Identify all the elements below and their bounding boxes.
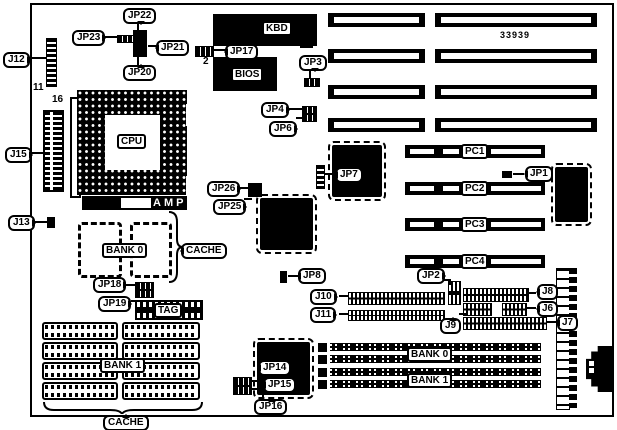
callout-cache-bottom: CACHE xyxy=(103,415,149,430)
callout-jp16: JP16 xyxy=(254,399,287,415)
jumper-jp23 xyxy=(117,35,134,43)
jumper-jp18 xyxy=(135,282,154,290)
isa-slot xyxy=(328,13,425,27)
cache-dip-chip xyxy=(122,382,200,400)
callout-j15: J15 xyxy=(5,147,32,163)
callout-jp22: JP22 xyxy=(123,8,156,24)
cache-bank1-label: BANK 1 xyxy=(100,358,145,373)
isa-slot xyxy=(435,85,597,99)
amp-label: AMP xyxy=(153,197,186,209)
callout-j12: J12 xyxy=(3,52,30,68)
callout-j10: J10 xyxy=(310,289,337,305)
callout-j8: J8 xyxy=(537,284,558,300)
isa-slot xyxy=(435,118,597,132)
amp-regulator-window xyxy=(121,198,151,208)
chipset-qfp xyxy=(260,198,313,250)
callout-jp25: JP25 xyxy=(213,199,246,215)
edge-connector-ladder xyxy=(556,268,570,410)
j15-pin16-label: 16 xyxy=(52,94,63,105)
jumper-j13 xyxy=(47,217,55,228)
j7-header xyxy=(463,317,547,330)
edge-connector-pins xyxy=(569,268,577,408)
bios-chip-label: BIOS xyxy=(231,67,263,82)
callout-j6: J6 xyxy=(537,301,558,317)
jumper-jp25-jp26-block xyxy=(248,183,262,197)
pci-slot-label: PC3 xyxy=(461,217,488,232)
isa-slot xyxy=(435,49,597,63)
j12-pin11-label: 11 xyxy=(33,82,44,93)
callout-jp6: JP6 xyxy=(269,121,297,137)
callout-jp17: JP17 xyxy=(225,44,258,60)
jumper-jp15 xyxy=(233,386,252,395)
callout-jp2: JP2 xyxy=(417,268,445,284)
jumper-jp1 xyxy=(502,171,512,178)
j11-header xyxy=(348,310,445,321)
jumper-jp14 xyxy=(233,377,252,386)
j9-header xyxy=(463,303,492,316)
callout-jp18: JP18 xyxy=(93,277,126,293)
isa-slot xyxy=(328,85,425,99)
callout-jp21: JP21 xyxy=(156,40,189,56)
jumper-jp8 xyxy=(280,271,287,283)
callout-j13: J13 xyxy=(8,215,35,231)
jumper-jp19 xyxy=(135,290,154,298)
pci-slot-label: PC2 xyxy=(461,181,488,196)
simm-bank0-label: BANK 0 xyxy=(407,347,452,362)
callout-jp26: JP26 xyxy=(207,181,240,197)
callout-j11: J11 xyxy=(310,307,336,323)
isa-slot xyxy=(328,49,425,63)
callout-jp19: JP19 xyxy=(98,296,131,312)
isa-slot xyxy=(328,118,425,132)
callout-jp23: JP23 xyxy=(72,30,105,46)
callout-jp7: JP7 xyxy=(335,167,363,183)
j15-connector xyxy=(43,110,64,192)
motherboard-diagram: 33939 PC1 PC2 PC3 PC4 KBD BIOS 2 11 16 C… xyxy=(0,0,617,430)
j6-header xyxy=(502,303,527,316)
callout-cache-top: CACHE xyxy=(181,243,227,259)
kbd-chip-label: KBD xyxy=(262,21,292,36)
jumper-jp4 xyxy=(302,106,317,114)
callout-jp1: JP1 xyxy=(525,166,553,182)
component-block xyxy=(300,17,313,48)
j8-header xyxy=(463,288,529,302)
jp17-pin2-label: 2 xyxy=(203,56,209,67)
callout-jp3: JP3 xyxy=(299,55,327,71)
callout-jp4: JP4 xyxy=(261,102,289,118)
j12-connector xyxy=(46,38,57,87)
board-part-number: 33939 xyxy=(500,30,530,40)
cpu-label: CPU xyxy=(117,134,146,149)
cache-dip-chip xyxy=(42,382,118,400)
callout-j7: J7 xyxy=(557,315,578,331)
jumper-jp3 xyxy=(304,78,320,87)
pci-slot-label: PC1 xyxy=(461,144,488,159)
callout-jp15: JP15 xyxy=(263,377,296,393)
cache-dip-chip xyxy=(122,322,200,340)
pci-slot-label: PC4 xyxy=(461,254,488,269)
cache-dip-chip xyxy=(42,322,118,340)
isa-slot xyxy=(435,13,597,27)
chipset-qfp xyxy=(555,167,588,222)
cache-bank0-label: BANK 0 xyxy=(102,243,147,258)
tag-chip-label: TAG xyxy=(154,303,182,318)
callout-j9: J9 xyxy=(440,318,461,334)
jumper-jp6 xyxy=(302,114,317,122)
jumper-jp20-jp22-block xyxy=(133,30,147,57)
callout-jp8: JP8 xyxy=(298,268,326,284)
simm-bank1-label: BANK 1 xyxy=(407,373,452,388)
j10-header xyxy=(348,292,445,305)
jp7-pin-strip xyxy=(316,165,325,189)
callout-jp20: JP20 xyxy=(123,65,156,81)
callout-jp14: JP14 xyxy=(258,360,291,376)
